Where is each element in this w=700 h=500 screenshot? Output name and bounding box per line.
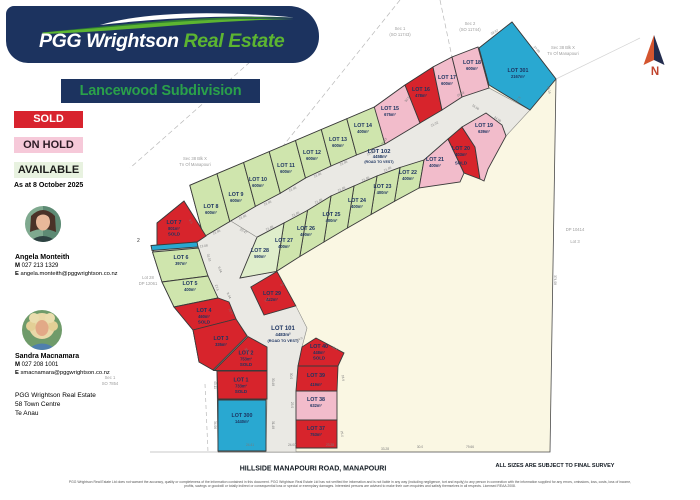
svg-text:18.9: 18.9 [341,375,346,382]
svg-text:600m²: 600m² [280,169,292,174]
svg-text:632m²: 632m² [310,403,322,408]
svg-text:Sec 38 Blk X: Sec 38 Blk X [183,156,207,161]
svg-text:2: 2 [137,238,140,244]
svg-text:25.0: 25.0 [290,402,294,408]
svg-text:400m²: 400m² [351,204,363,209]
svg-text:400m²: 400m² [402,176,414,181]
svg-text:801m²: 801m² [168,226,180,231]
svg-text:400m²: 400m² [429,163,441,168]
svg-text:374.08: 374.08 [553,275,557,285]
svg-text:SOLD: SOLD [168,232,180,237]
svg-text:4458m²: 4458m² [373,154,388,159]
svg-text:400m²: 400m² [357,129,369,134]
svg-text:590m²: 590m² [254,254,266,259]
svg-text:HILLSIDE MANAPOURI ROAD, MANAP: HILLSIDE MANAPOURI ROAD, MANAPOURI [240,466,387,473]
svg-text:753m²: 753m² [310,432,322,437]
svg-text:Lot 28: Lot 28 [142,275,154,280]
svg-text:400m²: 400m² [326,218,338,223]
svg-text:600m²: 600m² [332,143,344,148]
svg-text:397m²: 397m² [175,261,187,266]
svg-text:Tn Of Manapouri: Tn Of Manapouri [179,162,210,167]
svg-text:24.00: 24.00 [288,443,296,447]
svg-text:SOLD: SOLD [235,389,247,394]
svg-text:(SO 11744): (SO 11744) [459,27,481,32]
svg-text:403m²: 403m² [455,152,467,157]
svg-text:400m²: 400m² [377,190,389,195]
svg-text:30.0: 30.0 [289,373,293,379]
svg-text:733m²: 733m² [235,384,247,389]
svg-text:ALL SIZES ARE SUBJECT TO FINAL: ALL SIZES ARE SUBJECT TO FINAL SURVEY [496,463,615,469]
svg-text:400m²: 400m² [278,244,290,249]
svg-text:(ROAD TO VEST): (ROAD TO VEST) [364,160,394,164]
svg-text:448m²: 448m² [313,350,325,355]
svg-text:4483m²: 4483m² [275,332,291,337]
svg-text:79.66: 79.66 [466,445,474,449]
svg-text:Lot 3: Lot 3 [570,239,580,244]
svg-text:30.0: 30.0 [417,445,423,449]
svg-text:SOLD: SOLD [313,356,325,361]
svg-text:753m²: 753m² [240,357,252,362]
svg-text:478m²: 478m² [415,93,427,98]
svg-text:31.48: 31.48 [271,421,275,429]
svg-text:Tn Of Manapouri: Tn Of Manapouri [547,51,578,56]
svg-text:34.06: 34.06 [213,421,217,429]
svg-text:DP 12061: DP 12061 [139,281,158,286]
svg-text:600m²: 600m² [252,183,264,188]
svg-text:600m²: 600m² [306,156,318,161]
svg-text:(SO 11743): (SO 11743) [389,32,411,37]
svg-text:600m²: 600m² [466,66,478,71]
svg-text:600m²: 600m² [441,81,453,86]
svg-text:460m²: 460m² [198,314,210,319]
svg-text:335m²: 335m² [215,342,227,347]
svg-text:SOLD: SOLD [198,320,210,325]
svg-text:40.11: 40.11 [213,381,217,389]
svg-text:600m²: 600m² [205,210,217,215]
svg-text:675m²: 675m² [384,112,396,117]
svg-text:33.28: 33.28 [381,447,389,451]
svg-text:LOT 39: LOT 39 [307,373,325,379]
svg-text:600m²: 600m² [230,198,242,203]
svg-text:639m²: 639m² [478,129,490,134]
svg-text:Sec 2: Sec 2 [465,21,476,26]
svg-text:23.28: 23.28 [326,443,334,447]
svg-text:SOLD: SOLD [240,362,252,367]
svg-text:1440m²: 1440m² [235,419,250,424]
svg-text:30.48: 30.48 [271,378,275,386]
svg-text:(ROAD TO VEST): (ROAD TO VEST) [268,339,300,343]
svg-text:400m²: 400m² [300,232,312,237]
svg-text:400m²: 400m² [184,287,196,292]
svg-text:Sec 38 Blk X: Sec 38 Blk X [551,45,575,50]
svg-text:SO 7854: SO 7854 [102,381,119,386]
svg-text:2167m²: 2167m² [511,74,526,79]
svg-text:SOLD: SOLD [455,161,467,166]
svg-text:419m²: 419m² [310,382,322,387]
svg-text:25.0: 25.0 [340,431,345,438]
svg-text:DP 10414: DP 10414 [566,227,585,232]
svg-text:Sec 1: Sec 1 [395,26,406,31]
svg-text:24.41: 24.41 [246,443,254,447]
svg-text:N: N [651,66,659,78]
